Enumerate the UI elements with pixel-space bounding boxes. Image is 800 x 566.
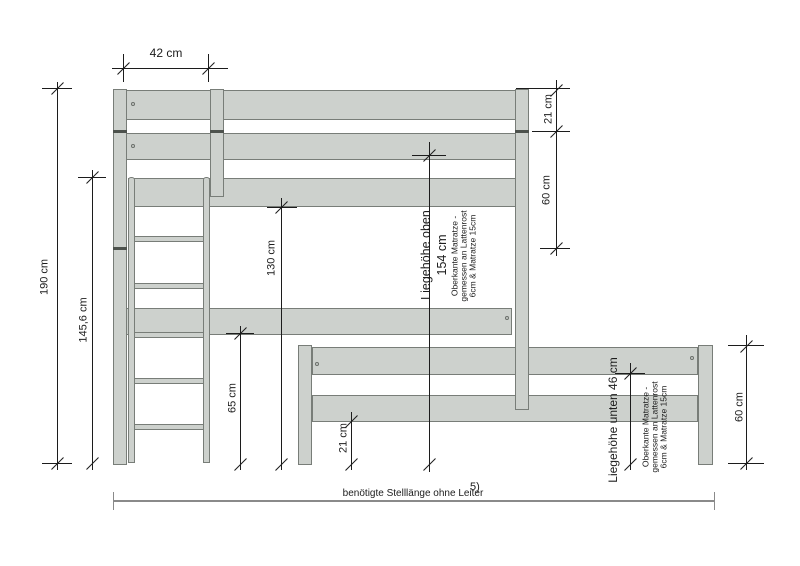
dim-line-145cm — [92, 170, 93, 470]
ladder-rung — [134, 378, 204, 384]
mattress-note-top: Oberkante Matratze - gemessen an Lattenr… — [451, 210, 478, 301]
liegehoehe-oben-value: 154 cm — [434, 210, 450, 300]
screw-dot — [131, 102, 135, 106]
upper-bed-guardrail-top — [126, 90, 516, 120]
post-joint — [210, 130, 224, 133]
ladder-rung — [134, 332, 204, 338]
figure-ref: 5) — [470, 481, 480, 493]
ladder-rung — [134, 283, 204, 289]
ladder-rung — [134, 424, 204, 430]
dim-ext — [516, 88, 570, 89]
post-joint — [515, 130, 529, 133]
dim-label-liegehoehe-unten: Liegehöhe unten 46 cm — [605, 357, 621, 482]
footprint-end-tick — [714, 492, 715, 510]
upper-bed-guardrail-bottom — [126, 133, 516, 160]
dim-label-21cm-lower: 21 cm — [338, 423, 351, 453]
dim-line-liegehoehe-unten — [630, 363, 631, 470]
dim-line-65cm — [240, 326, 241, 470]
dim-line-130cm — [281, 198, 282, 470]
upper-bed-long-rail — [113, 308, 512, 335]
upper-bed-left-post — [113, 89, 127, 465]
post-joint — [113, 247, 127, 250]
liegehoehe-oben-text: Liegehöhe oben — [418, 210, 434, 300]
lower-bed-top-rail — [312, 347, 698, 375]
dim-label-65cm: 65 cm — [227, 383, 240, 413]
dim-label-190cm: 190 cm — [39, 259, 52, 295]
dim-label-21cm-right: 21 cm — [543, 94, 556, 124]
dim-label-42cm: 42 cm — [150, 46, 183, 60]
dim-label-liegehoehe-oben: Liegehöhe oben 154 cm — [418, 210, 450, 300]
screw-dot — [505, 316, 509, 320]
dim-label-145cm: 145,6 cm — [78, 297, 91, 342]
ladder-right-rail — [203, 177, 210, 463]
note-line: 6cm & Matratze 15cm — [660, 381, 669, 472]
lower-bed-left-post — [298, 345, 312, 465]
dim-line-liegehoehe-oben — [429, 142, 430, 472]
mattress-note-bottom: Oberkante Matratze - gemessen an Lattenr… — [642, 381, 669, 472]
dim-ext — [532, 131, 570, 132]
dim-line-190cm — [57, 82, 58, 470]
bunk-bed-technical-drawing: 42 cm 190 cm 145,6 cm 130 cm 65 cm 21 cm… — [0, 0, 800, 566]
ladder-rung — [134, 236, 204, 242]
dim-line-right-guardrail — [556, 80, 557, 256]
dim-line-42cm — [112, 68, 228, 69]
upper-bed-mattress-rail — [128, 178, 516, 207]
lower-bed-right-post — [698, 345, 713, 465]
post-joint — [113, 130, 127, 133]
dim-label-60cm-right: 60 cm — [541, 175, 554, 205]
footprint-label: benötigte Stelllänge ohne Leiter — [343, 488, 484, 499]
upper-bed-middle-post — [210, 89, 224, 197]
footprint-end-tick — [113, 492, 114, 510]
screw-dot — [315, 362, 319, 366]
note-line: 6cm & Matratze 15cm — [469, 210, 478, 301]
upper-bed-right-post — [515, 89, 529, 410]
screw-dot — [131, 144, 135, 148]
dim-label-130cm: 130 cm — [266, 240, 279, 276]
dim-label-60cm-lowerright: 60 cm — [734, 392, 747, 422]
screw-dot — [690, 356, 694, 360]
footprint-line — [113, 500, 715, 502]
ladder-left-rail — [128, 177, 135, 463]
